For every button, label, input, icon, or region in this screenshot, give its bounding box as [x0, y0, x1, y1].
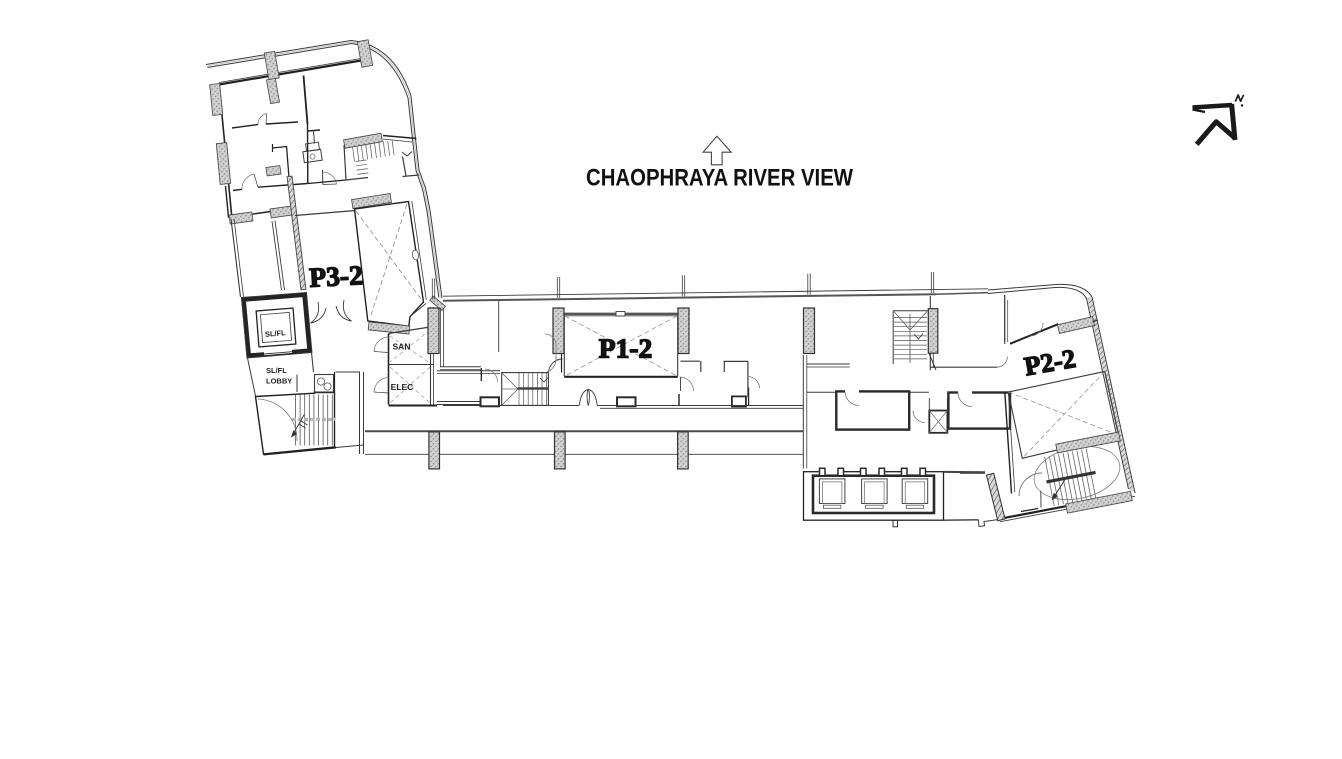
svg-text:ELEC: ELEC — [391, 382, 414, 392]
svg-text:P3-2: P3-2 — [308, 259, 363, 293]
svg-text:P1-2: P1-2 — [599, 333, 652, 364]
svg-text:SL/FL: SL/FL — [266, 366, 287, 375]
svg-text:CHAOPHRAYA RIVER VIEW: CHAOPHRAYA RIVER VIEW — [586, 165, 853, 192]
svg-text:SL/FL: SL/FL — [265, 328, 287, 339]
svg-text:LOBBY: LOBBY — [266, 377, 292, 386]
svg-text:SAN: SAN — [393, 342, 411, 352]
